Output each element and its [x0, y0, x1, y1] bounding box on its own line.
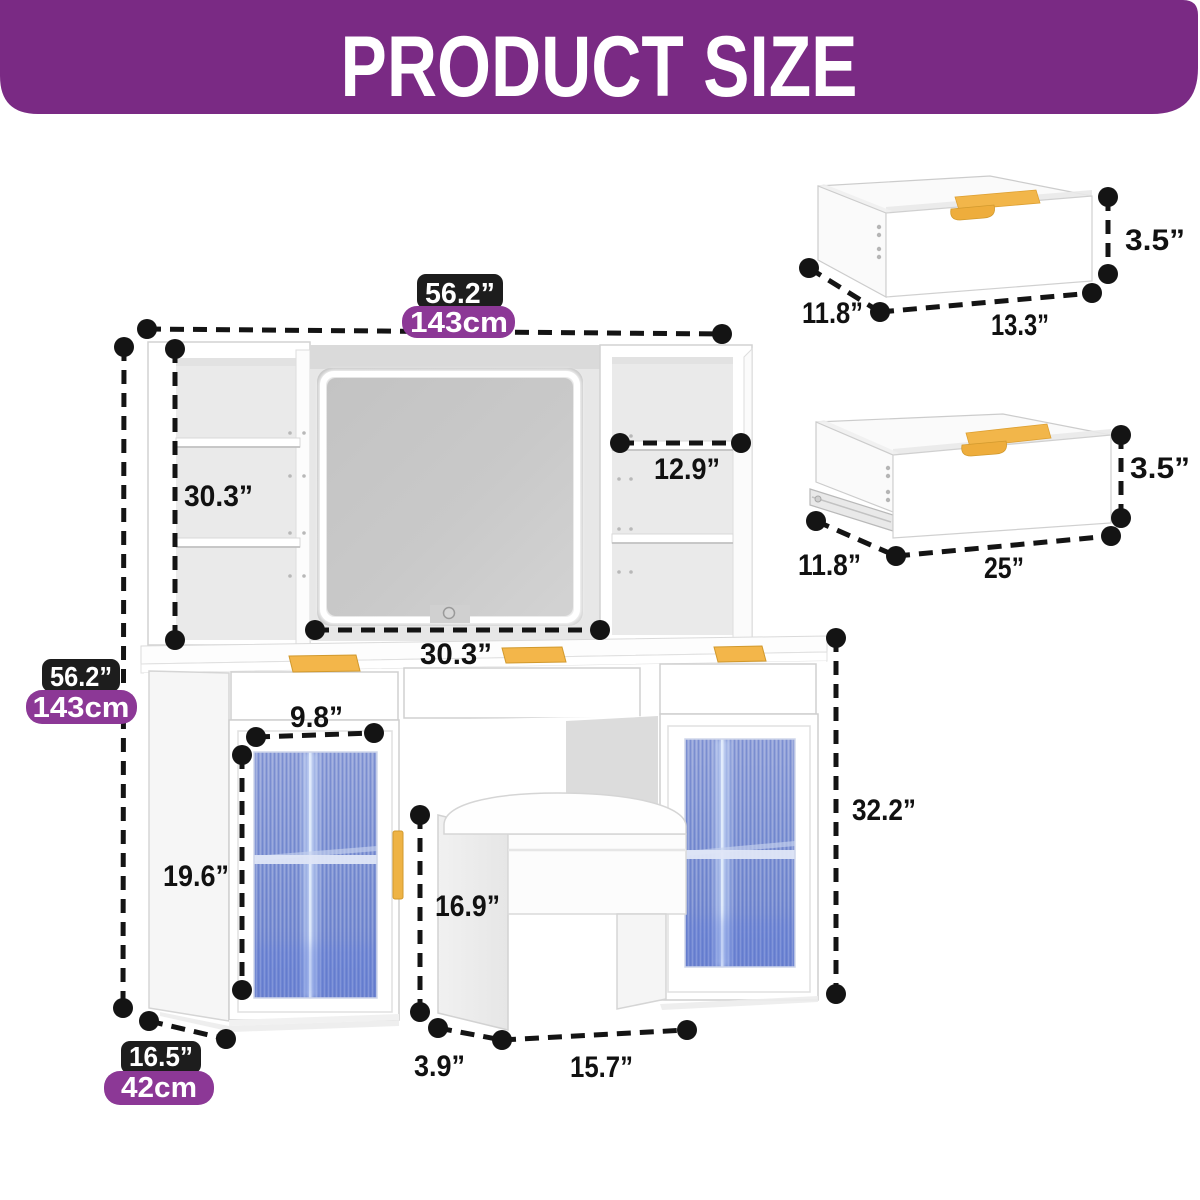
- svg-text:3.5”: 3.5”: [1125, 224, 1185, 257]
- svg-text:3.9”: 3.9”: [414, 1050, 465, 1083]
- svg-text:32.2”: 32.2”: [852, 794, 916, 827]
- svg-text:56.2”: 56.2”: [50, 661, 112, 692]
- svg-text:42cm: 42cm: [121, 1072, 197, 1104]
- svg-text:12.9”: 12.9”: [654, 453, 720, 486]
- svg-text:13.3”: 13.3”: [991, 309, 1049, 342]
- svg-text:19.6”: 19.6”: [163, 860, 229, 893]
- svg-text:143cm: 143cm: [33, 692, 130, 724]
- svg-text:11.8”: 11.8”: [802, 297, 863, 330]
- svg-text:3.5”: 3.5”: [1130, 452, 1190, 485]
- svg-text:25”: 25”: [984, 552, 1024, 585]
- svg-text:9.8”: 9.8”: [290, 701, 343, 734]
- svg-text:30.3”: 30.3”: [184, 480, 253, 513]
- svg-text:11.8”: 11.8”: [798, 549, 861, 582]
- svg-text:16.9”: 16.9”: [435, 890, 500, 923]
- svg-text:16.5”: 16.5”: [129, 1041, 193, 1072]
- svg-text:PRODUCT SIZE: PRODUCT SIZE: [341, 19, 858, 115]
- svg-text:30.3”: 30.3”: [420, 638, 492, 671]
- svg-text:143cm: 143cm: [410, 307, 508, 339]
- svg-text:15.7”: 15.7”: [570, 1051, 633, 1084]
- svg-text:56.2”: 56.2”: [425, 278, 495, 310]
